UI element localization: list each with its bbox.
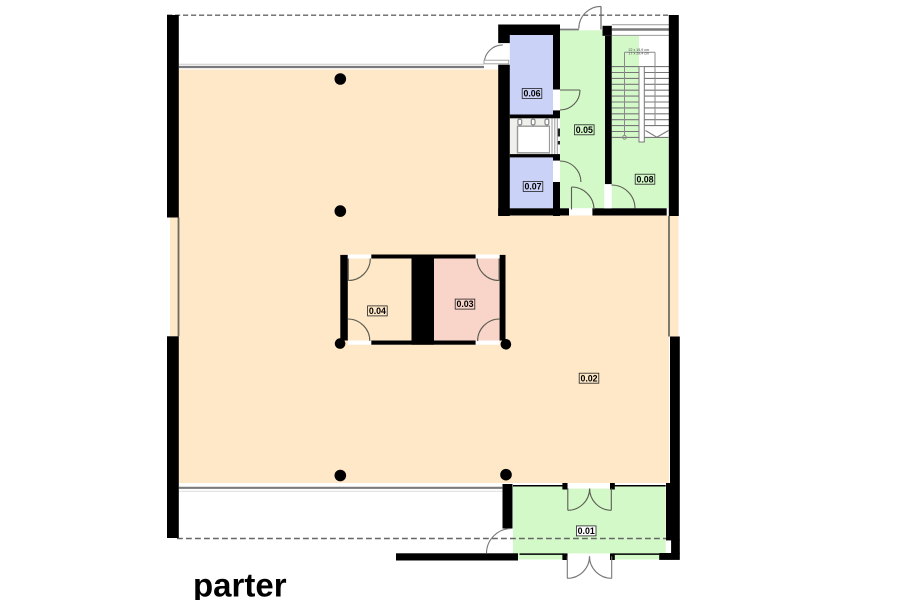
svg-text:0.04: 0.04 xyxy=(369,306,386,316)
svg-text:0.07: 0.07 xyxy=(524,182,541,192)
svg-text:17 x 29,4 cm: 17 x 29,4 cm xyxy=(629,52,650,56)
svg-text:0.01: 0.01 xyxy=(578,526,595,536)
svg-text:0.08: 0.08 xyxy=(636,174,653,184)
svg-text:0.03: 0.03 xyxy=(456,299,473,309)
svg-text:0.02: 0.02 xyxy=(580,373,597,383)
svg-text:parter: parter xyxy=(193,567,287,600)
svg-text:0.05: 0.05 xyxy=(576,125,593,135)
svg-text:0.06: 0.06 xyxy=(523,89,540,99)
